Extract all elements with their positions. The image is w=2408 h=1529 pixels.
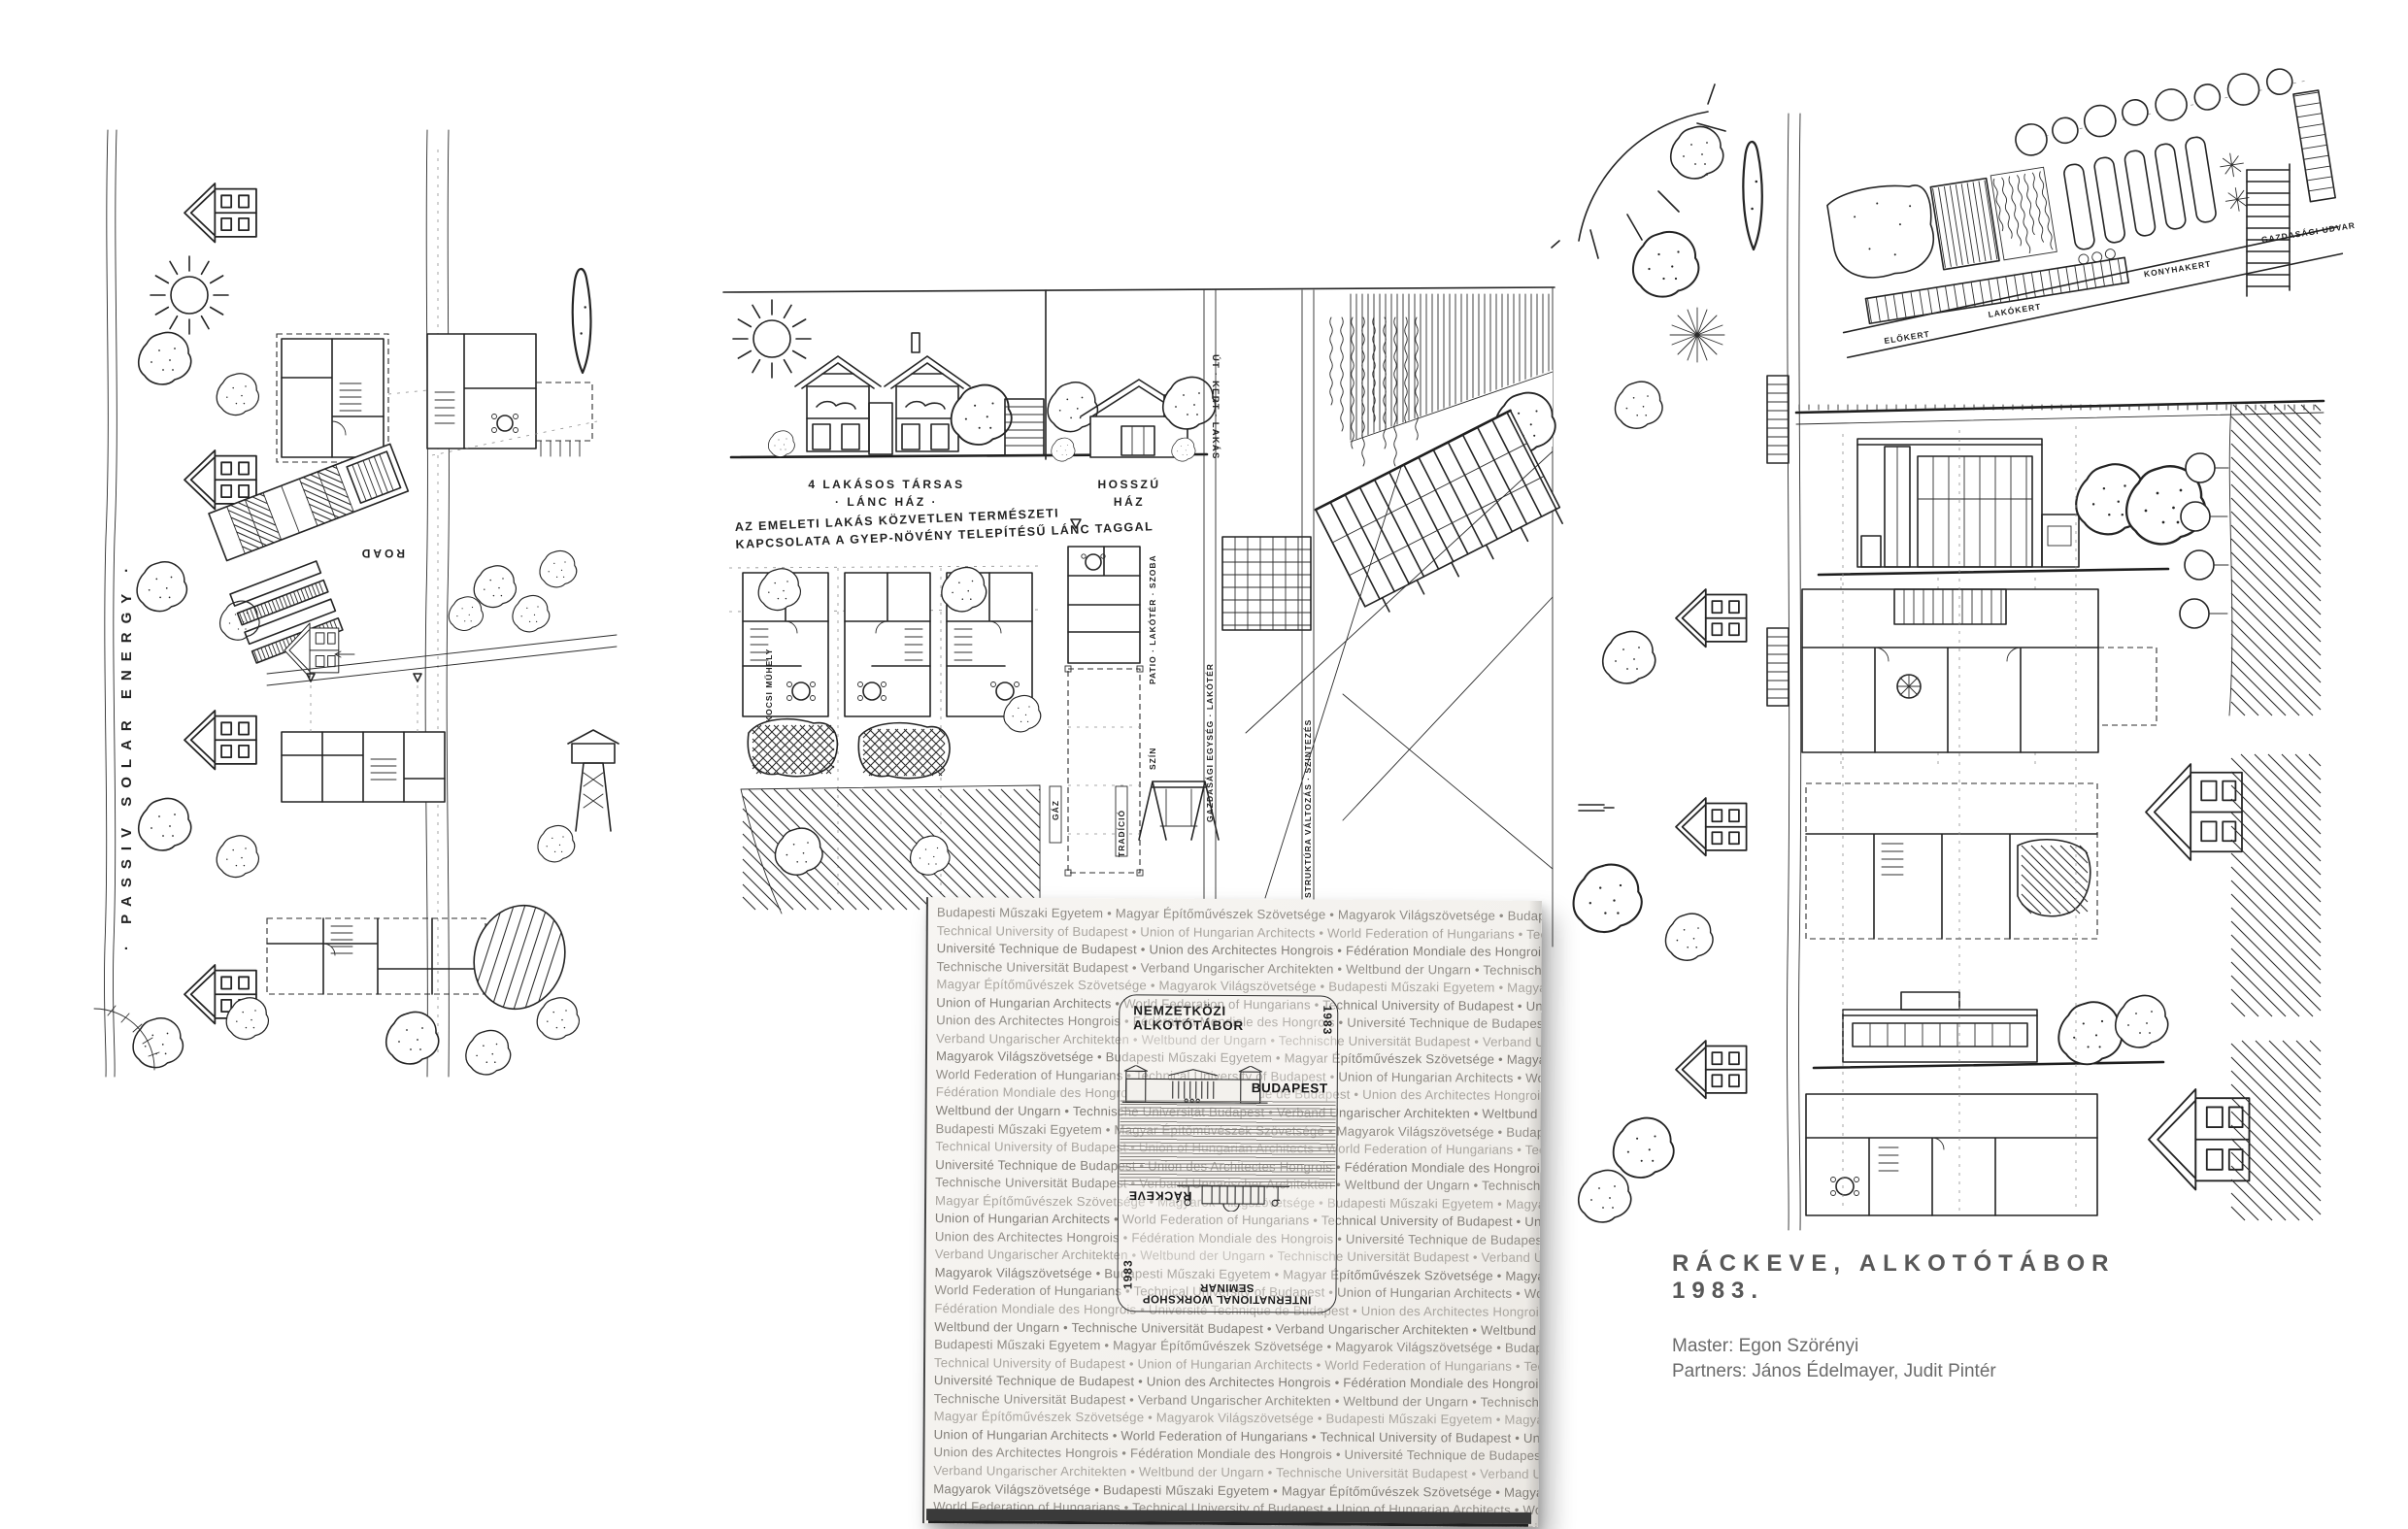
booklet-emblem: NEMZETKÖZI ALKOTÓTÁBOR 1983 BUDAPEST (1117, 994, 1338, 1313)
sun-icon (733, 300, 811, 378)
passive-solar-label: · PASSIV SOLAR ENERGY · (118, 559, 135, 950)
drawing-middle-chain-house: 4 LAKÁSOS TÁRSAS · LÁNC HÁZ · HOSSZÚ HÁZ… (721, 277, 1556, 956)
right-tilted-garden-plan: ELŐKERT LAKÓKERT KONYHAKERT GAZDASÁGI UD… (1814, 60, 2364, 357)
budapest-university-building-sketch (1122, 1065, 1268, 1105)
right-street-column (1574, 127, 1789, 1222)
left-plan-b (388, 334, 597, 456)
left-road-strip (425, 130, 449, 1077)
right-hatch-band-1 (2180, 405, 2321, 715)
emblem-city-budapest: BUDAPEST (1252, 1080, 1328, 1095)
gas-strip-label: GÁZ (1051, 800, 1060, 820)
right-plan-cluster-1 (1802, 578, 2157, 769)
caption-master: Master: Egon Szörényi (1672, 1334, 2216, 1359)
left-watchtower (538, 730, 619, 862)
right-modern-elevation (1819, 439, 2205, 575)
left-trees-mid (449, 550, 576, 631)
gable-roof-plan (2146, 764, 2242, 860)
right-plan-cluster-3 (1806, 1094, 2097, 1215)
star-plants (2219, 151, 2251, 213)
middle-elevation-row (731, 290, 1216, 461)
sun-icon (150, 256, 228, 334)
chain-house-label-1: 4 LAKÁSOS TÁRSAS (808, 477, 964, 491)
emblem-year-top: 1983 (1321, 1006, 1334, 1036)
long-house-label-2: HÁZ (1114, 494, 1145, 509)
right-plan-cluster-2 (1806, 783, 2097, 939)
left-plan-a (277, 334, 388, 462)
chain-house-label-2: · LÁNC HÁZ · (835, 494, 938, 509)
road-label: ROAD (359, 547, 405, 560)
structure-strip-label: STRUKTÚRA VÁLTOZÁS · SZINTEZÉS (1302, 719, 1313, 898)
rackeve-building-sketch (1177, 1184, 1289, 1213)
left-plan-bottom (267, 918, 485, 994)
left-trees-bottom (386, 998, 580, 1075)
gable-roof-plan (2149, 1089, 2250, 1190)
patio-strip-label: PATIO · LAKÓTÉR · SZOBA (1147, 554, 1157, 684)
long-house-label-1: HOSSZÚ (1097, 477, 1160, 491)
page-title: RÁCKEVE, ALKOTÓTÁBOR 1983. (1672, 1250, 2216, 1305)
tradition-strip-label: TRADÍCIÓ (1116, 810, 1126, 857)
tree-sketch (952, 385, 1012, 445)
shed-strip-label: SZÍN (1148, 748, 1157, 770)
booklet-cover: Budapesti Műszaki Egyetem • Magyar Építő… (922, 897, 1542, 1527)
left-plan-mid (282, 674, 445, 802)
caption-partners: Partners: János Édelmayer, Judit Pintér (1672, 1359, 2216, 1384)
drawing-left-passive-solar-site: · PASSIV SOLAR ENERGY · (92, 130, 646, 1077)
spiky-plant (1670, 308, 1724, 362)
garden-label-elokert: ELŐKERT (1884, 328, 1931, 346)
portfolio-page: · PASSIV SOLAR ENERGY · (0, 0, 2408, 1529)
garden-label-gazdasagi: GAZDASÁGI UDVAR (2260, 220, 2356, 245)
booklet-page-edge (1524, 901, 1542, 1527)
middle-right-region: STRUKTÚRA VÁLTOZÁS · SZINTEZÉS (1246, 290, 1567, 945)
danube-river-band (1120, 1100, 1336, 1186)
right-top-trellis (2247, 164, 2290, 296)
emblem-title: NEMZETKÖZI ALKOTÓTÁBOR (1133, 1003, 1337, 1033)
right-low-elevation (1814, 992, 2168, 1068)
road-strip-label: ÚT · KERT · LAKÁS (1210, 354, 1221, 460)
emblem-subtitle: INTERNATIONAL WORKSHOP SEMINAR (1118, 1280, 1335, 1305)
right-division-band (1796, 401, 2324, 424)
middle-annotation: AZ EMELETI LAKÁS KÖZVETLEN TERMÉSZETI KA… (734, 501, 1154, 551)
left-border: · PASSIV SOLAR ENERGY · (104, 130, 135, 1077)
right-hatch-band-2 (2231, 754, 2321, 1016)
tree-sketch (139, 333, 191, 384)
economy-strip-label: GAZDASÁGI EGYSÉG · LAKÓTÉR (1204, 663, 1215, 822)
caption-block: RÁCKEVE, ALKOTÓTÁBOR 1983. Master: Egon … (1672, 1250, 2216, 1384)
drawing-right-garden-sections: ELŐKERT LAKÓKERT KONYHAKERT GAZDASÁGI UD… (1552, 84, 2324, 1230)
emblem-city-rackeve: RÁCKEVE (1128, 1188, 1191, 1202)
